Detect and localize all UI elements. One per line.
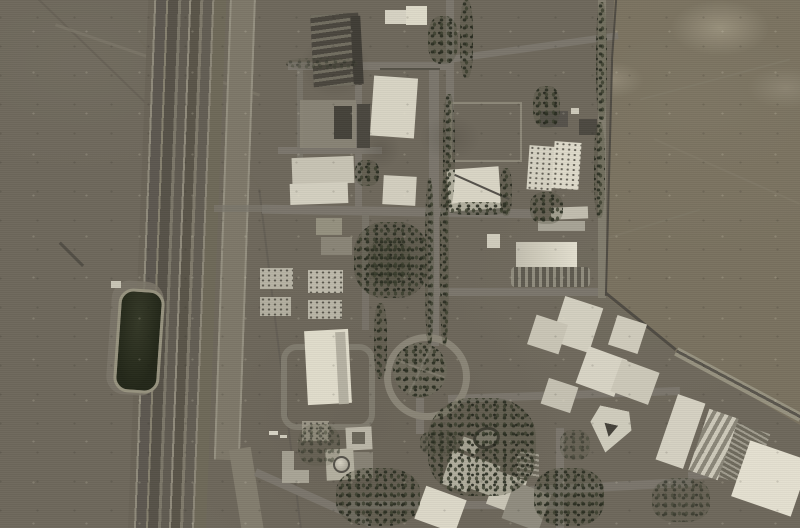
road-h-south: [428, 288, 606, 296]
twin-building: [551, 141, 581, 190]
tree-park: [652, 478, 710, 522]
frontage-road-bend: [229, 447, 265, 528]
satellite-image: [0, 0, 800, 528]
small-building: [487, 234, 500, 248]
building: [406, 6, 427, 25]
warehouse: [308, 270, 343, 293]
highway: [127, 0, 226, 528]
tree-row: [460, 0, 473, 78]
vehicle: [280, 435, 287, 438]
tree-row: [440, 178, 449, 346]
warehouse: [308, 300, 342, 319]
warehouse: [260, 297, 291, 316]
tree-cluster: [428, 16, 458, 64]
tree-cluster: [530, 192, 563, 224]
tree-cluster: [355, 160, 379, 186]
tree-cluster: [560, 430, 590, 460]
warehouse: [260, 268, 293, 289]
small-building: [321, 237, 352, 255]
l-building: [282, 470, 309, 483]
small-building: [316, 218, 342, 235]
tree-park: [534, 468, 604, 526]
vehicle: [269, 431, 278, 435]
road-gate: [214, 205, 270, 212]
twin-building: [526, 145, 554, 191]
pond-pad: [111, 281, 121, 288]
construction-frame-edge: [350, 16, 364, 84]
tree-cluster: [420, 430, 460, 456]
dark-ditch: [59, 242, 84, 267]
tree-row: [286, 58, 358, 69]
building: [382, 175, 416, 206]
tree-row: [596, 2, 607, 120]
arched-garages: [511, 267, 590, 287]
courtyard: [352, 432, 365, 444]
dark-building: [334, 106, 352, 139]
building: [541, 378, 579, 413]
large-building: [370, 76, 418, 139]
tree-cluster: [533, 86, 560, 128]
road-dashes: [380, 68, 440, 70]
small-building: [571, 108, 579, 114]
road-h-top-east: [449, 32, 618, 63]
tree-park: [336, 468, 420, 526]
tree-row: [594, 122, 605, 218]
long-building: [516, 242, 577, 268]
tree-grove-core: [368, 238, 410, 284]
building: [290, 182, 349, 205]
tree-row: [446, 202, 510, 215]
building: [292, 156, 355, 185]
tree-park: [298, 424, 340, 466]
reservoir-pond: [112, 288, 165, 395]
dark-building: [357, 104, 370, 148]
tree-row: [374, 303, 387, 379]
